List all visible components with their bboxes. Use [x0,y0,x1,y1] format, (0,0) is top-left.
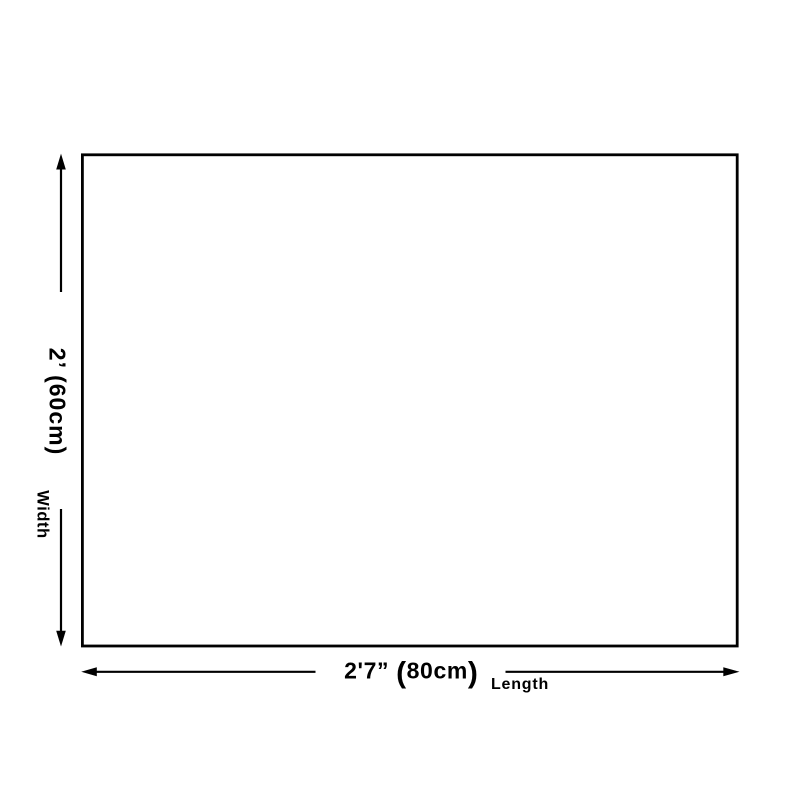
svg-text:2’ (60cm): 2’ (60cm) [45,348,71,455]
svg-text:Width: Width [34,490,52,538]
svg-text:Length: Length [491,676,549,693]
